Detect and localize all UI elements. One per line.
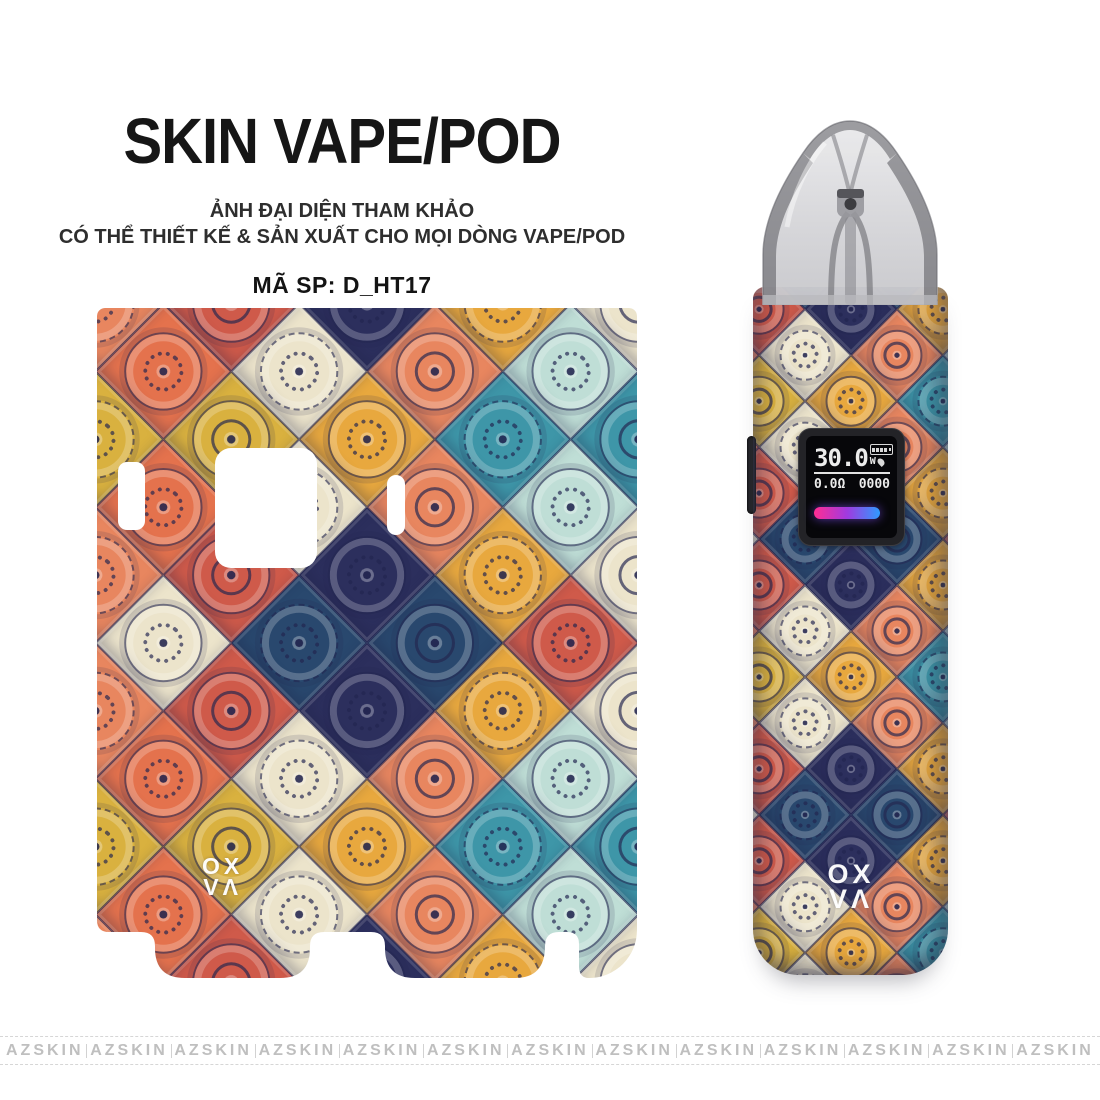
- watermark-logo: AZSKIN: [90, 1042, 168, 1060]
- product-sheet: SKIN VAPE/POD ẢNH ĐẠI DIỆN THAM KHẢO CÓ …: [0, 0, 1100, 1100]
- watermark-separator: [86, 1044, 87, 1058]
- cutout-airflow-slot: [387, 475, 405, 535]
- pod-mouthpiece: [753, 105, 948, 305]
- watermark-logo: AZSKIN: [174, 1042, 252, 1060]
- battery-icon: [870, 444, 893, 455]
- watermark-separator: [255, 1044, 256, 1058]
- subtitle-line-1: ẢNH ĐẠI DIỆN THAM KHẢO: [0, 198, 684, 224]
- fire-button: [747, 436, 756, 514]
- page-title: SKIN VAPE/POD: [0, 110, 684, 174]
- watermark-logo: AZSKIN: [259, 1042, 337, 1060]
- watermark-logo: AZSKIN: [764, 1042, 842, 1060]
- watermark-separator: [592, 1044, 593, 1058]
- cutout-screen-window: [215, 448, 317, 568]
- watermark-separator: [760, 1044, 761, 1058]
- watermark-logo: AZSKIN: [595, 1042, 673, 1060]
- watermark-separator: [507, 1044, 508, 1058]
- watermark-logo: AZSKIN: [932, 1042, 1010, 1060]
- brand-logo-line2: VΛ: [811, 887, 891, 912]
- brand-logo-oxva: OX VΛ: [202, 856, 243, 898]
- puff-count: 0000: [859, 477, 890, 492]
- skin-template-preview: OX VΛ: [97, 308, 637, 978]
- puff-icon: [876, 457, 886, 467]
- watermark-logo: AZSKIN: [427, 1042, 505, 1060]
- mandala-pattern: [97, 308, 637, 978]
- resistance-value: 0.0Ω: [814, 477, 845, 492]
- watermark-separator: [171, 1044, 172, 1058]
- watermark-separator: [844, 1044, 845, 1058]
- device-screen: 30.0 W 0.0Ω 0000: [798, 428, 905, 546]
- brand-logo-oxva: OX VΛ: [811, 862, 891, 912]
- cutout-side-button: [118, 462, 145, 530]
- brand-logo-line2: VΛ: [202, 877, 243, 898]
- header: SKIN VAPE/POD ẢNH ĐẠI DIỆN THAM KHẢO CÓ …: [0, 110, 684, 299]
- watermark-separator: [676, 1044, 677, 1058]
- subtitle-line-2: CÓ THỂ THIẾT KẾ & SẢN XUẤT CHO MỌI DÒNG …: [0, 224, 684, 250]
- watermark-logo: AZSKIN: [1016, 1042, 1094, 1060]
- vape-device-preview: 30.0 W 0.0Ω 0000: [753, 105, 948, 975]
- watermark-separator: [1012, 1044, 1013, 1058]
- wattage-value: 30.0: [814, 448, 868, 468]
- watermark-logo: AZSKIN: [343, 1042, 421, 1060]
- watermark-separator: [928, 1044, 929, 1058]
- watermark-logo: AZSKIN: [680, 1042, 758, 1060]
- product-code: MÃ SP: D_HT17: [0, 272, 684, 299]
- watermark-separator: [423, 1044, 424, 1058]
- watermark-strip: AZSKINAZSKINAZSKINAZSKINAZSKINAZSKINAZSK…: [0, 1036, 1100, 1065]
- watermark-logo: AZSKIN: [511, 1042, 589, 1060]
- screen-divider: [814, 472, 890, 474]
- watermark-separator: [339, 1044, 340, 1058]
- wattage-row: 30.0 W: [814, 444, 890, 468]
- screen-gradient-bar: [814, 507, 880, 519]
- watermark-logo: AZSKIN: [6, 1042, 84, 1060]
- device-body: 30.0 W 0.0Ω 0000: [753, 287, 948, 975]
- wattage-unit: W: [870, 457, 876, 467]
- screen-display: 30.0 W 0.0Ω 0000: [806, 436, 897, 538]
- watermark-logo: AZSKIN: [848, 1042, 926, 1060]
- status-row: 0.0Ω 0000: [814, 477, 890, 492]
